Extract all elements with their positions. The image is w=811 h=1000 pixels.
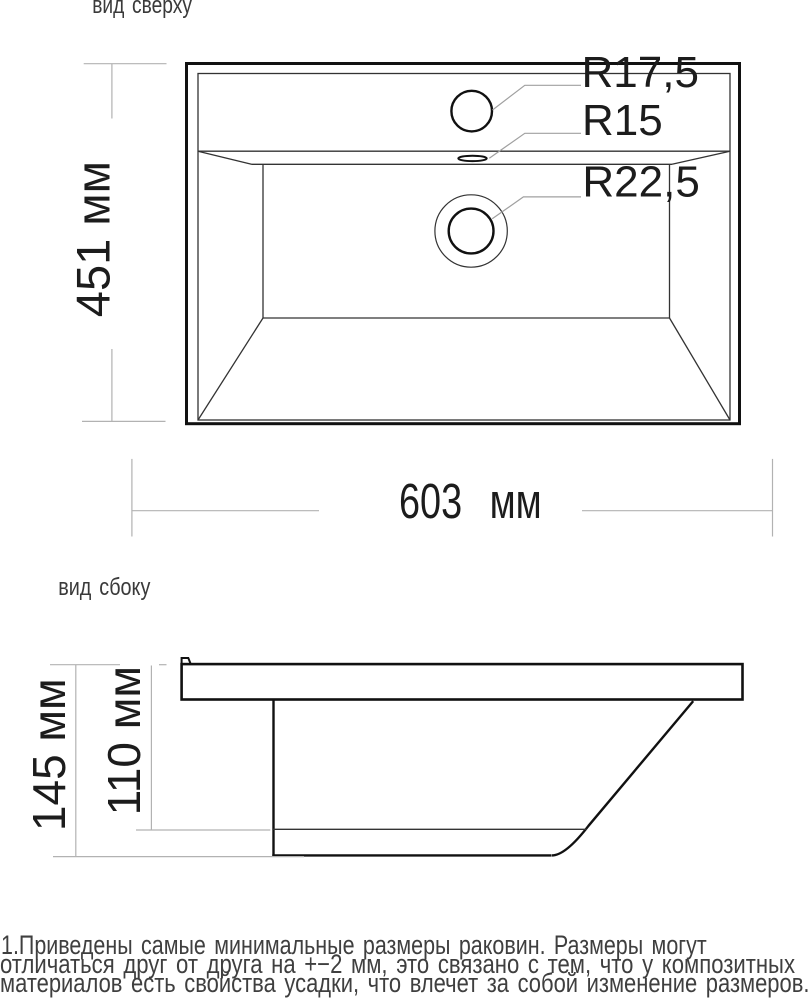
svg-text:145 мм: 145 мм <box>23 678 75 831</box>
svg-text:вид сверху: вид сверху <box>92 0 192 19</box>
svg-text:603 мм: 603 мм <box>399 474 542 529</box>
svg-text:R17,5: R17,5 <box>582 48 699 97</box>
svg-text:R22,5: R22,5 <box>582 157 699 206</box>
svg-text:R15: R15 <box>582 96 663 145</box>
svg-text:вид сбоку: вид сбоку <box>58 573 150 600</box>
svg-text:110 мм: 110 мм <box>98 666 150 815</box>
svg-text:451 мм: 451 мм <box>66 161 119 317</box>
